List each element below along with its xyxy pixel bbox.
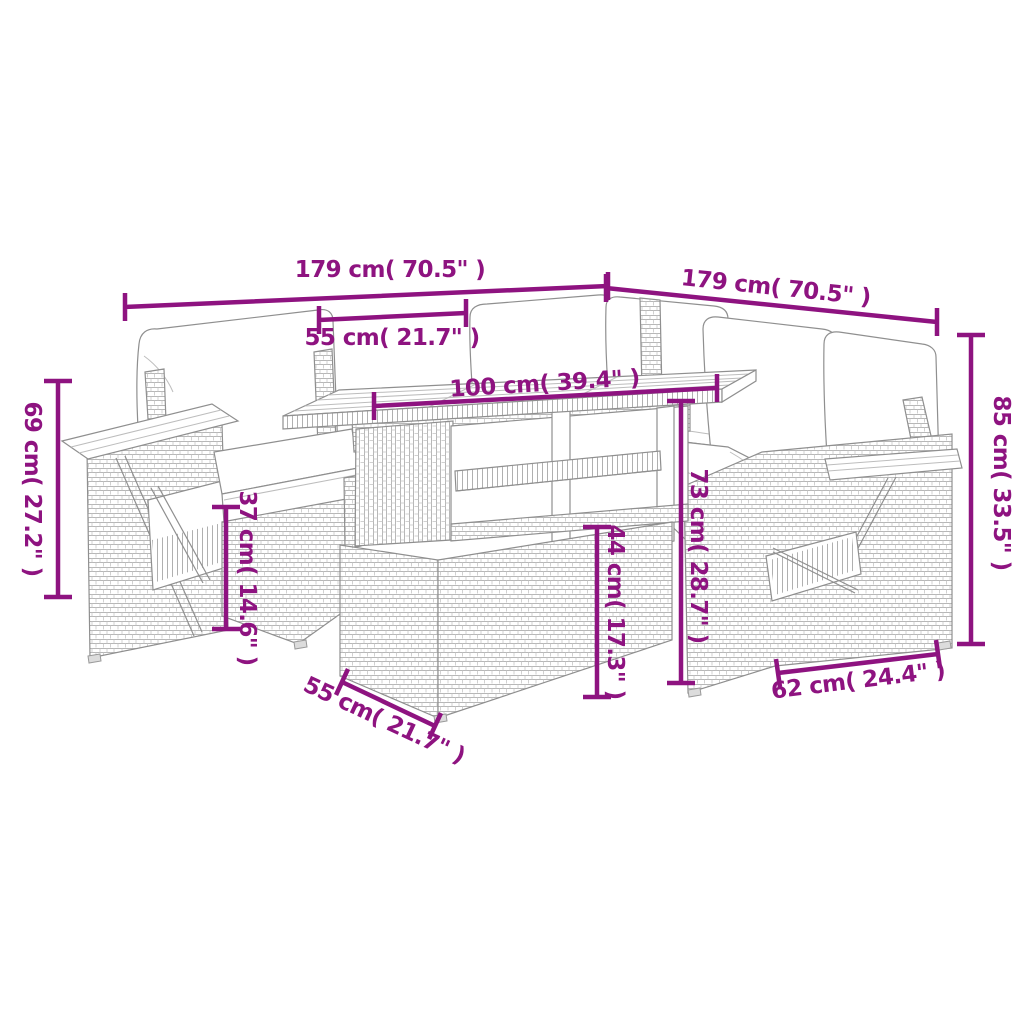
furniture-line-art: 179 cm( 70.5" ) 179 cm( 70.5" ) 55 cm( 2… — [0, 0, 1024, 1024]
cube-front-face — [438, 522, 672, 718]
table-skirt-left-face — [355, 421, 453, 546]
dim-label-37: 37 cm( 14.6" ) — [234, 491, 260, 666]
dim-label-179-left: 179 cm( 70.5" ) — [295, 257, 485, 283]
dim-label-69: 69 cm( 27.2" ) — [19, 402, 45, 577]
dim-label-85: 85 cm( 33.5" ) — [988, 396, 1014, 571]
dim-label-73: 73 cm( 28.7" ) — [685, 469, 711, 644]
dim-label-55-top: 55 cm( 21.7" ) — [305, 325, 480, 351]
table-lift-column-left — [552, 410, 570, 556]
dim-line-69 — [44, 381, 72, 597]
dim-label-44: 44 cm( 17.3" ) — [602, 525, 628, 700]
dimension-diagram-canvas: 179 cm( 70.5" ) 179 cm( 70.5" ) 55 cm( 2… — [0, 0, 1024, 1024]
left-sofa-front — [62, 404, 361, 658]
dim-line-85 — [957, 335, 985, 644]
